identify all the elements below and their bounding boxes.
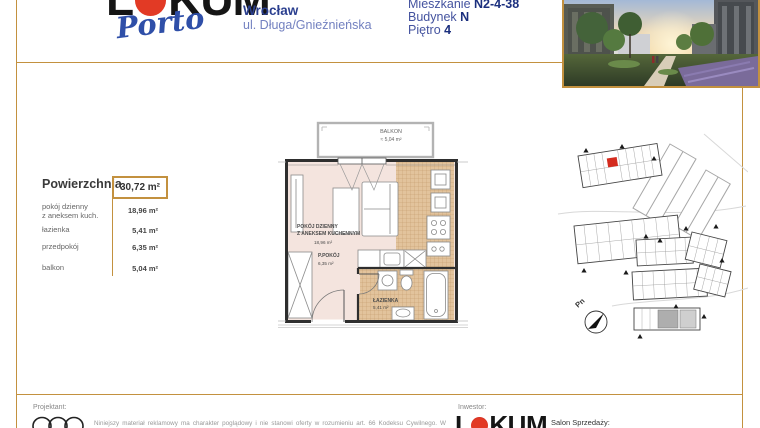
kitchen-counter (358, 250, 426, 268)
street-name: ul. Długa/Gnieźnieńska (243, 18, 372, 33)
investor-logo-kum: KUM (489, 410, 547, 428)
kitchen-cabinet (431, 170, 450, 189)
unit-info-block: Mieszkanie N2-4-38 Budynek N Piętro 4 (408, 0, 519, 37)
hero-photo (562, 0, 760, 88)
investor-dot-icon (471, 417, 488, 428)
investor-logo-l: L (455, 410, 470, 428)
total-area-value: 30,72 m² (120, 182, 160, 193)
kitchen-cabinet (431, 193, 450, 212)
bathroom-area: 5,41 m² (373, 305, 389, 310)
north-label: Pn (573, 296, 586, 309)
living-room-label2: Z ANEKSEM KUCHENNYM (297, 231, 360, 237)
lower-structure-lines (278, 325, 468, 328)
hero-photo-art (564, 0, 758, 86)
floor-label: Piętro (408, 23, 444, 37)
area-row-value: 5,41 m² (112, 226, 158, 235)
bathtub (424, 271, 448, 319)
area-row-label: balkon (42, 264, 108, 273)
apartment-value: N2-4-38 (474, 0, 519, 11)
area-table-title: Powierzchnia (42, 177, 122, 191)
site-map: Pn (556, 128, 748, 356)
building-value: N (460, 10, 469, 24)
footer-divider (16, 394, 743, 395)
wardrobe (288, 252, 312, 318)
area-row-label: przedpokój (42, 243, 108, 252)
area-row-label: łazienka (42, 226, 108, 235)
floor-value: 4 (444, 23, 451, 37)
investor-logo: LKUM (455, 412, 547, 428)
living-room-label: POKÓJ DZIENNY (297, 222, 339, 230)
stove (427, 216, 450, 239)
brochure-page: LKUM Porto Wrocław ul. Długa/Gnieźnieńsk… (0, 0, 760, 428)
location-block: Wrocław ul. Długa/Gnieźnieńska (243, 3, 372, 33)
area-row-value: 18,96 m² (112, 206, 158, 215)
sofa (362, 182, 398, 236)
floor-plan: BALKON ≈ 5,04 m² (278, 118, 468, 328)
building-label: Budynek (408, 10, 460, 24)
hall-area: 6,35 m² (318, 261, 334, 266)
balcony: BALKON ≈ 5,04 m² (318, 123, 433, 157)
toilet (400, 270, 413, 290)
balcony-area: ≈ 5,04 m² (380, 137, 401, 143)
designer-label: Projektant: (33, 404, 66, 411)
hall-label: P.POKÓJ (318, 251, 340, 259)
bathroom-label: ŁAZIENKA (373, 298, 399, 304)
kitchen-sink-right (427, 242, 450, 256)
area-row-label: pokój dzienny z aneksem kuch. (42, 203, 108, 220)
area-row-value: 5,04 m² (112, 264, 158, 273)
city-name: Wrocław (243, 3, 372, 18)
building (636, 237, 693, 266)
legal-disclaimer: Niniejszy materiał reklamowy ma charakte… (94, 420, 446, 428)
header-divider (16, 62, 563, 63)
highlighted-unit (607, 157, 618, 167)
floor-line: Piętro 4 (408, 24, 519, 37)
living-room-area: 18,96 m² (314, 240, 333, 245)
designer-logo (32, 415, 84, 428)
frame-left (16, 0, 17, 428)
service-building (634, 308, 700, 330)
total-area-box: 30,72 m² (112, 176, 168, 199)
bath-sink (392, 307, 414, 320)
sales-office-label: Salon Sprzedaży: (551, 418, 610, 427)
washing-machine (378, 271, 397, 290)
balcony-label: BALKON (380, 129, 402, 135)
compass: Pn (573, 296, 607, 333)
area-row-value: 6,35 m² (112, 243, 158, 252)
